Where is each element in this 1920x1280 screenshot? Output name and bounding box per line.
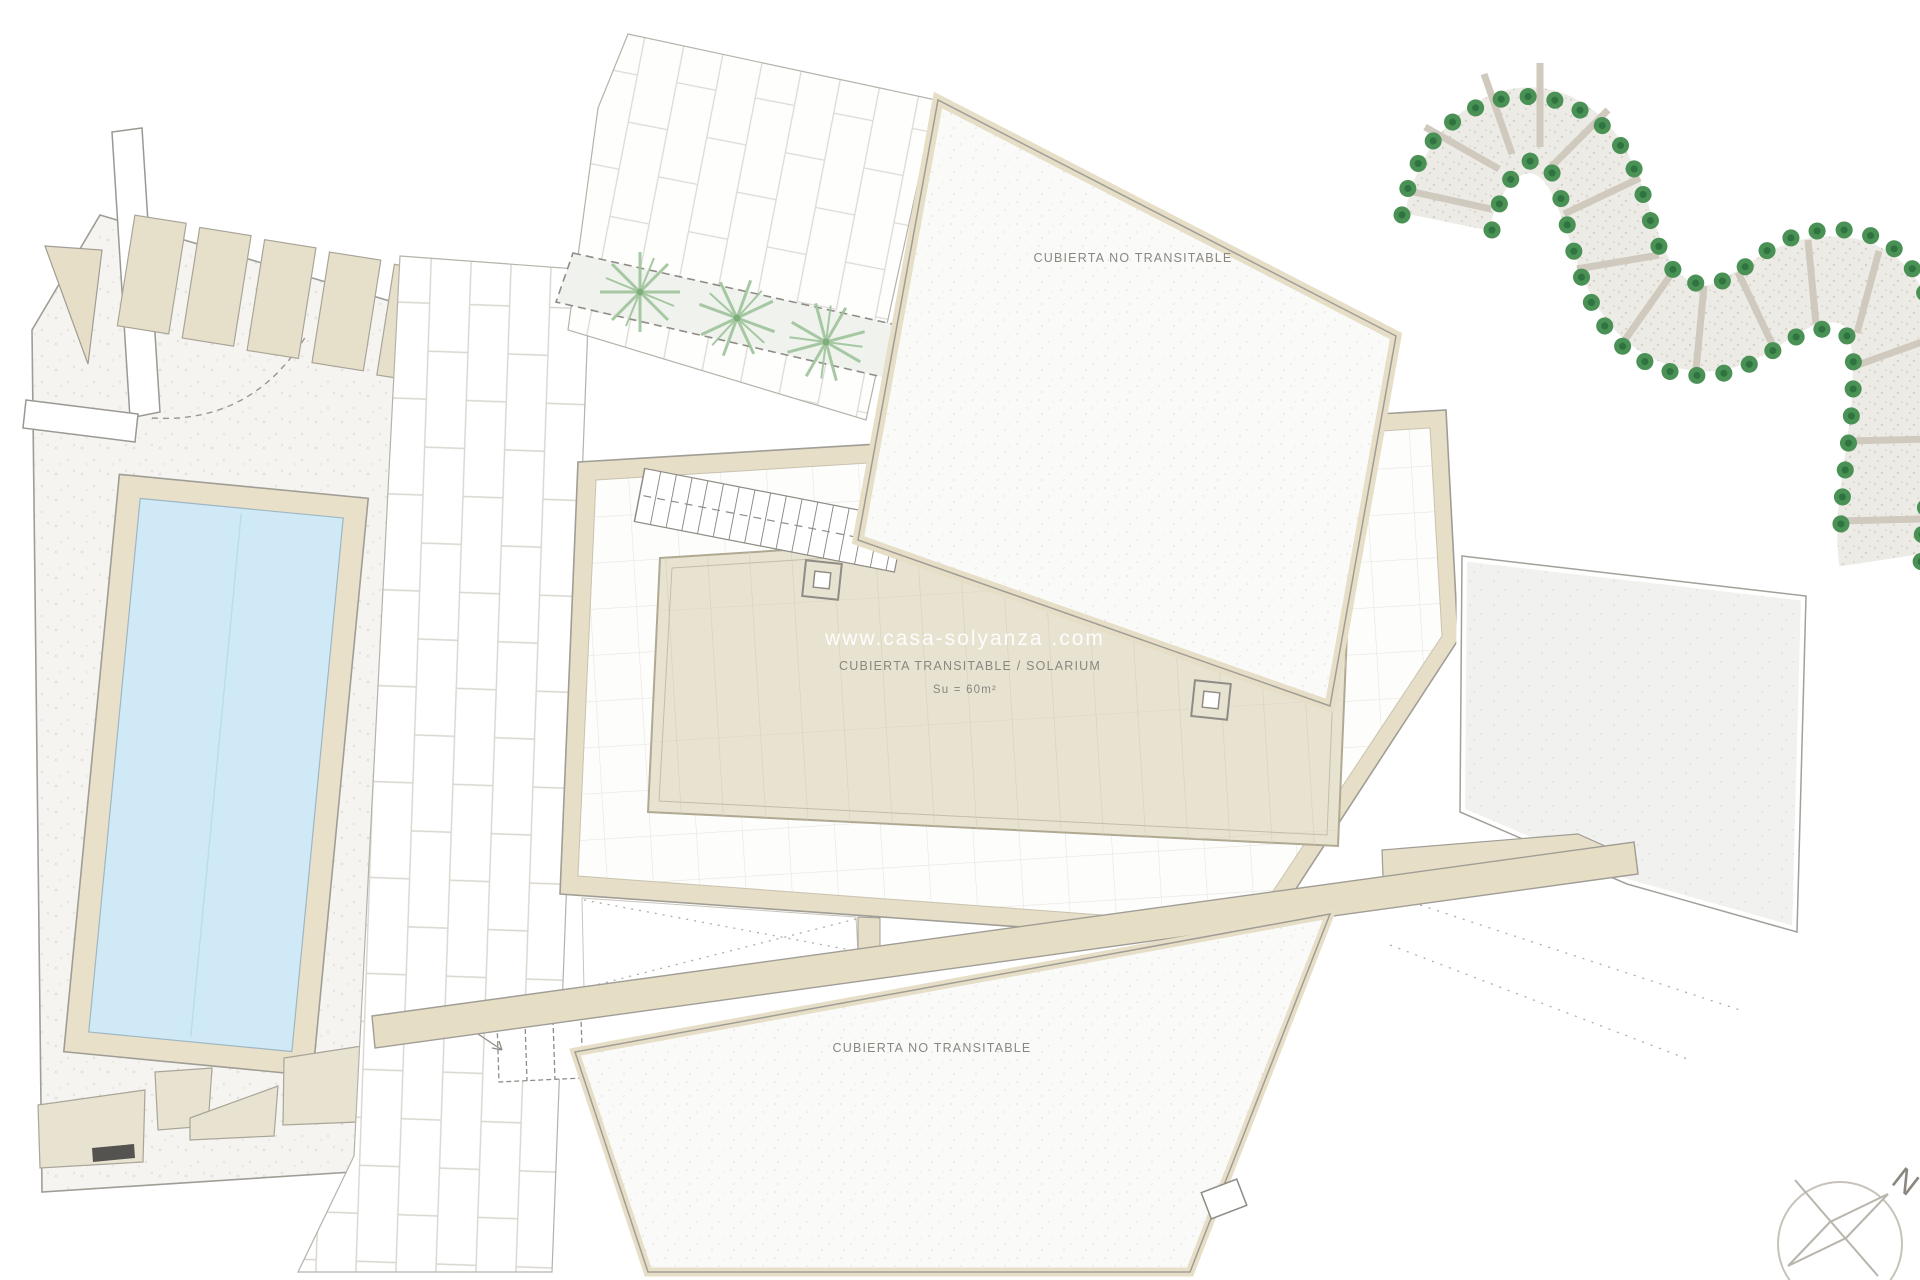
watermark: www.casa-solyanza .com <box>824 627 1105 650</box>
skylight-inner <box>813 571 831 589</box>
skylight-inner <box>1202 691 1220 709</box>
solarium-label: CUBIERTA TRANSITABLE / SOLARIUM <box>839 659 1101 673</box>
solarium-area-label: Su = 60m² <box>933 684 997 696</box>
compass-cross <box>1795 1180 1878 1276</box>
palm-tree-icon <box>600 252 680 332</box>
roof-plan-drawing: N CUBIERTA NO TRANSITABLE www.casa-solya… <box>0 0 1920 1280</box>
path-surface <box>1447 130 1896 560</box>
roof-top-label: CUBIERTA NO TRANSITABLE <box>1034 251 1233 265</box>
compass-rose-icon: N <box>1778 1160 1920 1280</box>
roof-plan-canvas: N CUBIERTA NO TRANSITABLE www.casa-solya… <box>0 0 1920 1280</box>
garden-path <box>1402 63 1920 575</box>
sun-pad <box>283 1046 362 1125</box>
compass-label: N <box>1886 1160 1920 1203</box>
slope-guides <box>1390 905 1740 1060</box>
roof-bottom-label: CUBIERTA NO TRANSITABLE <box>833 1041 1032 1055</box>
